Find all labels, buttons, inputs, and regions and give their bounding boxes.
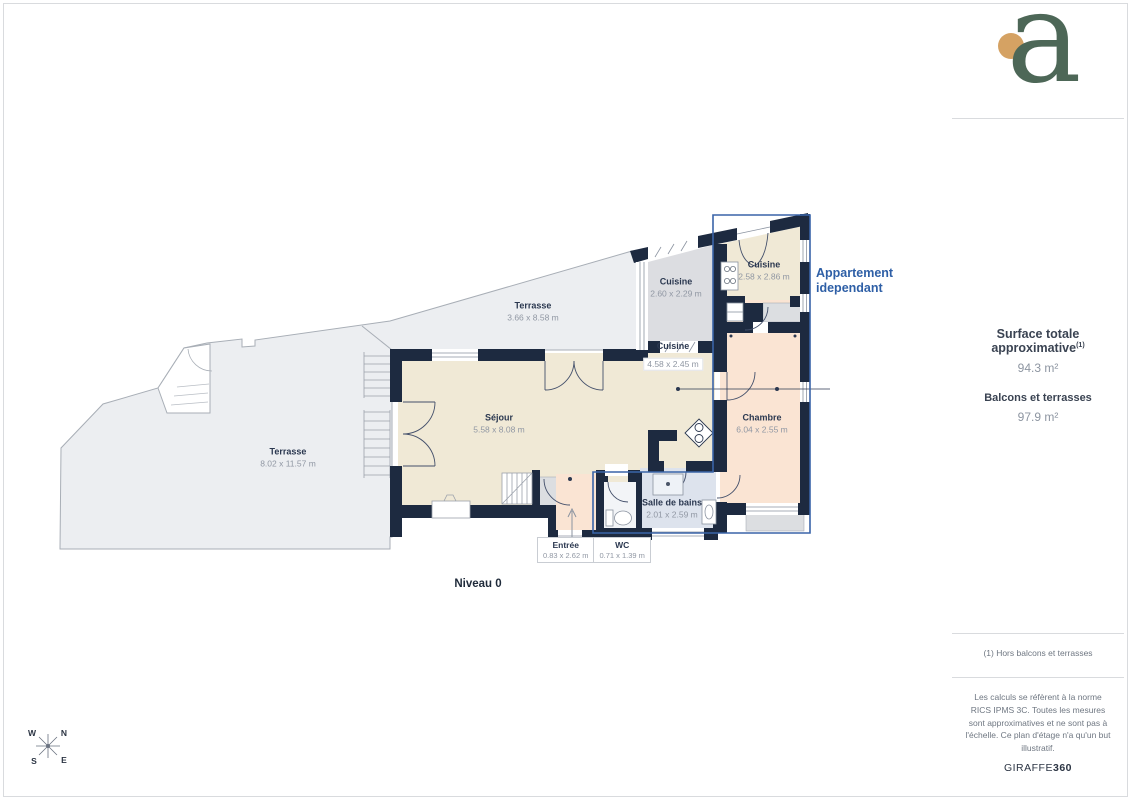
surface-footnote: (1) Hors balcons et terrasses [952, 648, 1124, 658]
divider [952, 677, 1124, 678]
divider [952, 633, 1124, 634]
compass-north: N [61, 728, 67, 738]
room-label-entree: Entrée 0.83 x 2.62 m [537, 537, 594, 563]
room-label-cuisine-appartement: Cuisine 2.58 x 2.86 m [738, 260, 790, 283]
room-label-salle-de-bains: Salle de bains 2.01 x 2.59 m [642, 498, 702, 521]
door-hinge-dot [568, 477, 572, 481]
surface-total-value: 94.3 m² [952, 361, 1124, 375]
room-label-cuisine-principale: Cuisine 4.58 x 2.45 m [643, 341, 703, 373]
toilet-icon [606, 510, 632, 526]
compass-icon: W N S E [16, 714, 80, 778]
legal-disclaimer: Les calculs se réfèrent à la norme RICS … [963, 691, 1113, 755]
balcony-title: Balcons et terrasses [952, 392, 1124, 404]
giraffe360-brand: GIRAFFE360 [952, 762, 1124, 774]
room-label-wc: WC 0.71 x 1.39 m [593, 537, 650, 563]
room-label-sejour: Séjour 5.58 x 8.08 m [473, 413, 525, 436]
room-label-cuisine-ouest: Cuisine 2.60 x 2.29 m [650, 277, 702, 300]
balcony-value: 97.9 m² [952, 410, 1124, 424]
logo-letter: a [1006, 3, 1081, 101]
apartment-annotation: Appartement idependant [816, 266, 893, 295]
surface-total-title: Surface totale approximative(1) [952, 327, 1124, 355]
closet-icon [727, 303, 743, 321]
stove-apartment-icon [721, 262, 738, 290]
sidebar: a Surface totale approximative(1) 94.3 m… [952, 3, 1124, 797]
room-label-terrasse-haute: Terrasse 3.66 x 8.58 m [507, 301, 559, 324]
compass-west: W [28, 728, 37, 738]
surface-summary: Surface totale approximative(1) 94.3 m² … [952, 327, 1124, 424]
shower-icon [653, 474, 683, 495]
room-label-terrasse-basse: Terrasse 8.02 x 11.57 m [260, 447, 316, 470]
sink-icon [702, 500, 716, 524]
floor-plan-page: Terrasse 3.66 x 8.58 m Terrasse 8.02 x 1… [0, 0, 1131, 800]
compass-east: E [61, 755, 67, 765]
interior-stairs-icon [502, 473, 532, 504]
brand-logo: a [952, 3, 1124, 118]
balcony-lower [746, 514, 804, 531]
level-title: Niveau 0 [454, 578, 501, 590]
floor-plan-drawing [0, 0, 950, 800]
compass-south: S [31, 756, 37, 766]
callout-labels: Entrée 0.83 x 2.62 m WC 0.71 x 1.39 m [537, 537, 651, 563]
room-label-chambre: Chambre 6.04 x 2.55 m [736, 413, 788, 436]
divider [952, 118, 1124, 119]
